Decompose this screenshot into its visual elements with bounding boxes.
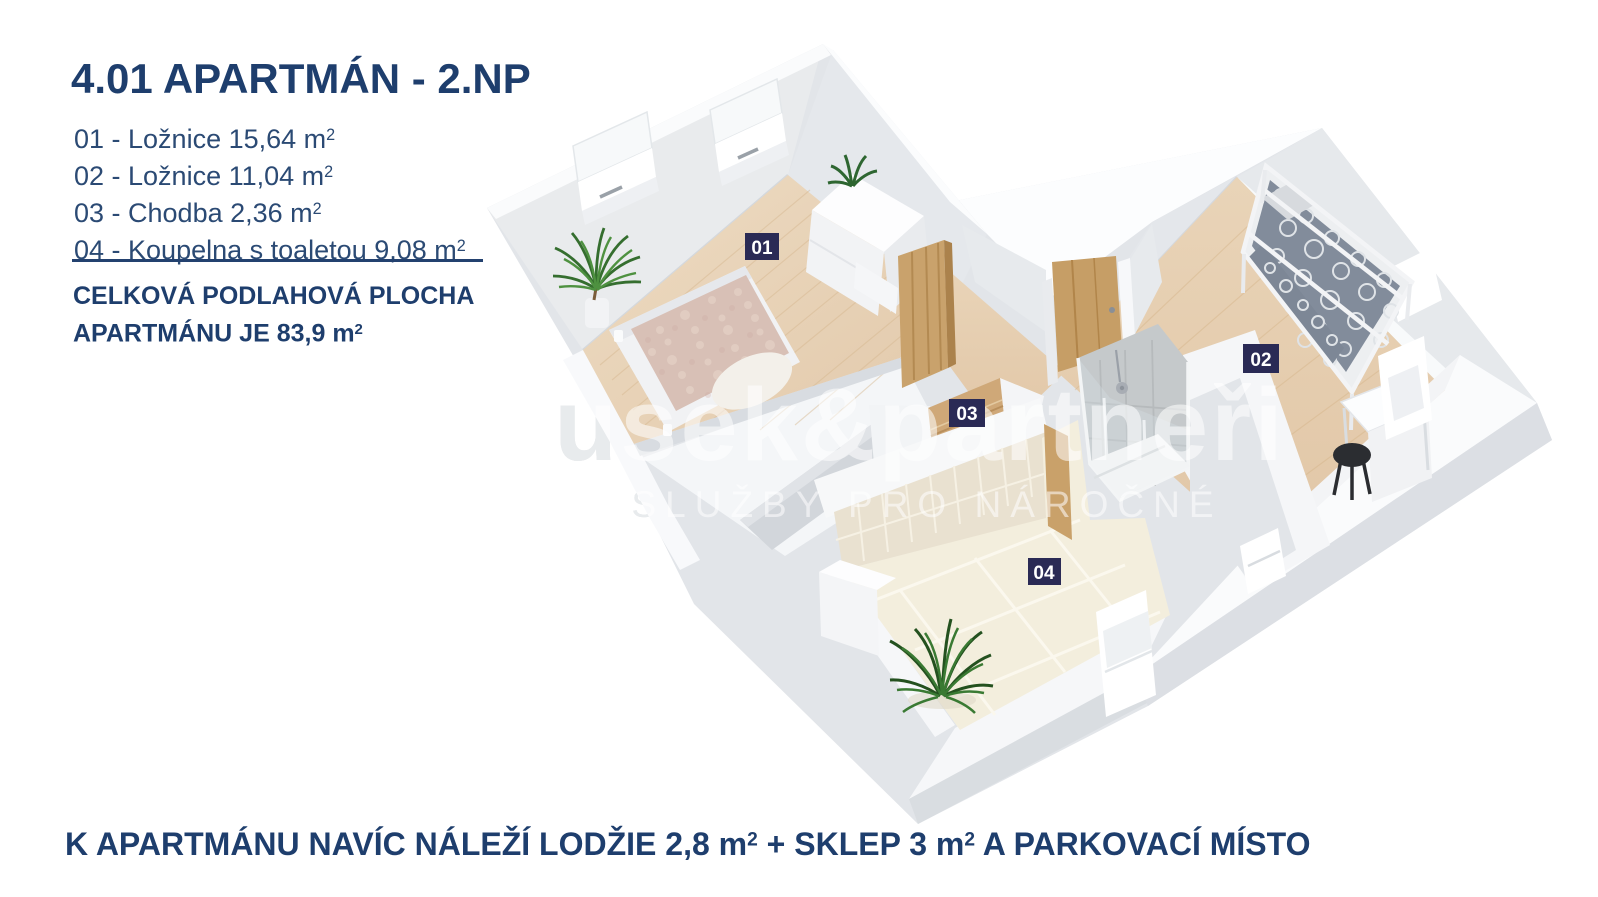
svg-text:04: 04 [1033,563,1055,584]
svg-text:usek&partneři: usek&partneři [554,367,1286,482]
svg-text:02: 02 [1250,350,1271,371]
svg-text:SLUŽBY PRO NÁROČNÉ: SLUŽBY PRO NÁROČNÉ [631,484,1222,525]
svg-text:03: 03 [956,404,977,425]
svg-text:01: 01 [751,238,773,259]
